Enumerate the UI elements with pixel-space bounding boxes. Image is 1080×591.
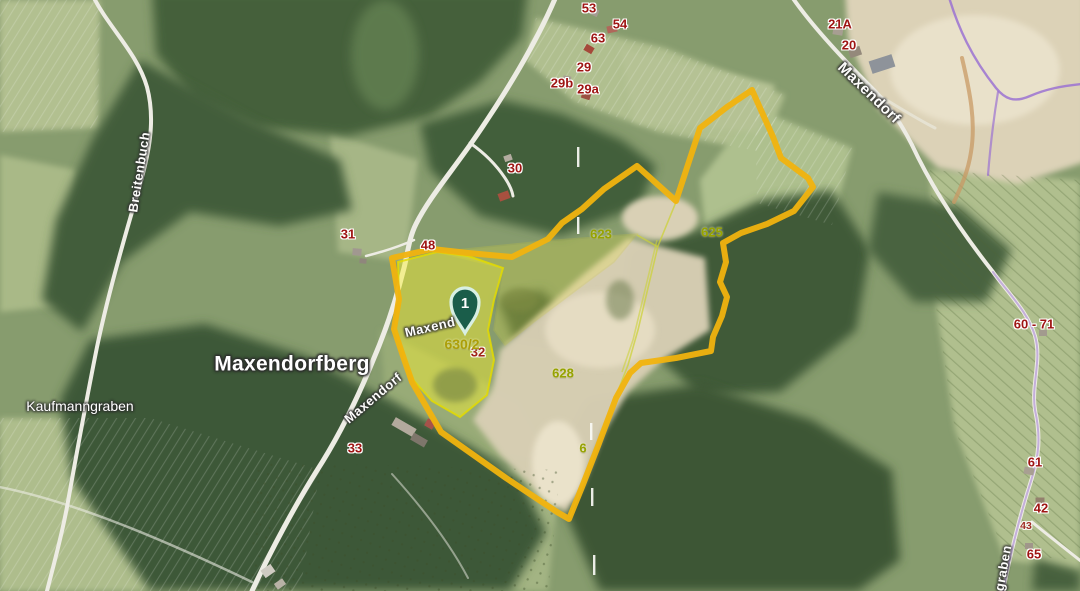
parcel-number-label: 630/2: [444, 337, 479, 351]
place-label-maxendorfberg: Maxendorfberg: [214, 354, 370, 375]
pin-number-label: 1: [461, 295, 469, 312]
parcel-number-label: 628: [552, 367, 574, 380]
house-number-badge: 43: [1020, 521, 1032, 532]
house-number-badge: 29a: [577, 83, 599, 96]
house-number-badge: 42: [1034, 502, 1048, 515]
map-terrain-layer: 1: [0, 0, 1080, 591]
house-number-badge: 30: [508, 162, 522, 175]
house-number-badge: 65: [1027, 548, 1041, 561]
house-number-badge: 21A: [828, 18, 852, 31]
house-number-badge: 63: [591, 32, 605, 45]
parcel-number-label: 625: [701, 226, 723, 239]
parcel-number-label: 623: [590, 228, 612, 241]
place-label-kaufmanngraben: Kaufmanngraben: [26, 399, 133, 413]
house-number-badge: 33: [348, 442, 362, 455]
parcel-tree-clump: [433, 368, 477, 402]
house-number-badge: 29: [577, 61, 591, 74]
parcel-number-label: 6: [579, 442, 586, 455]
house-number-badge: 53: [582, 2, 596, 15]
satellite-map[interactable]: 1 Maxendorfberg Kaufmanngraben Breitenbu…: [0, 0, 1080, 591]
house-number-badge: 60 - 71: [1014, 318, 1054, 331]
house-number-badge: 20: [842, 39, 856, 52]
house-number-badge: 54: [613, 18, 627, 31]
house-number-badge: 29b: [551, 77, 573, 90]
house-number-badge: 48: [421, 239, 435, 252]
house-number-badge: 31: [341, 228, 355, 241]
house-number-badge: 61: [1028, 456, 1042, 469]
